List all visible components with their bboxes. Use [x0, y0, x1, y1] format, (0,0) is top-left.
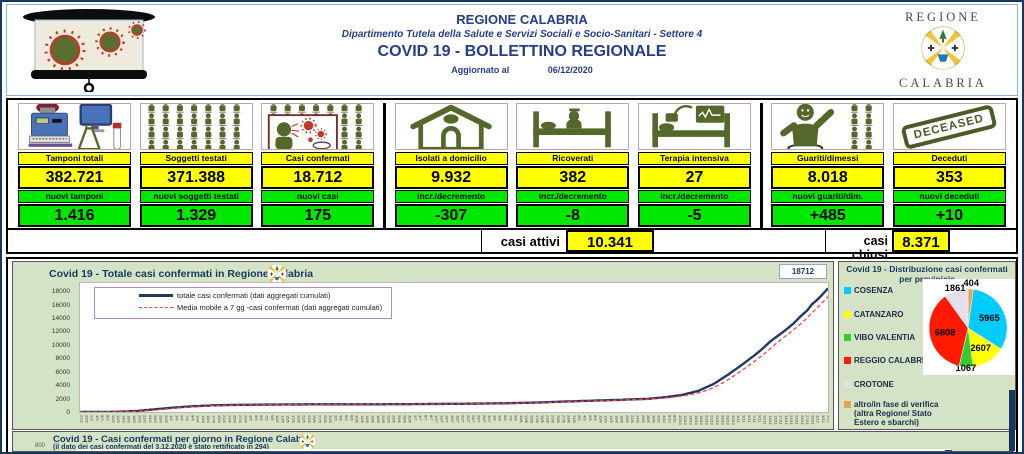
x-tick-label: 14/9	[609, 415, 613, 423]
x-tick-label: 13/8	[524, 415, 528, 423]
stat-sub-label: incr./decremento	[638, 190, 751, 203]
x-tick-label: 19/11	[784, 415, 788, 425]
x-tick-label: 24/6	[392, 415, 396, 423]
summary-row: casi attivi 10.341 casi chiusi 8.371	[8, 228, 1016, 252]
x-tick-label: 24/7	[471, 415, 475, 423]
virus-projector-logo-icon	[13, 8, 165, 92]
x-tick-label: 28/6	[402, 415, 406, 423]
x-tick-label: 5/5	[259, 415, 263, 421]
x-tick-label: 25/11	[800, 415, 804, 425]
stat-value: 382	[516, 166, 629, 189]
x-tick-label: 25/5	[312, 415, 316, 423]
x-tick-label: 4/7	[418, 415, 422, 421]
stat-card-soggetti: Soggetti testati 371.388 nuovi soggetti …	[140, 103, 253, 228]
x-tick-label: 23/8	[551, 415, 555, 423]
x-tick-label: 4/3	[95, 415, 99, 421]
x-tick-label: 21/8	[545, 415, 549, 423]
x-tick-label: 3/12	[821, 415, 825, 423]
x-tick-label: 23/11	[795, 415, 799, 425]
x-tick-label: 6/7	[424, 415, 428, 421]
pie-legend-swatch	[844, 311, 851, 318]
stat-value: 18.712	[261, 166, 374, 189]
stat-label: Isolati a domicilio	[395, 152, 508, 165]
x-tick-label: 23/4	[227, 415, 231, 423]
deceased-stamp-icon: DECEASED	[893, 103, 1006, 150]
stat-card-deceduti: DECEASED Deceduti 353 nuovi deceduti +10	[893, 103, 1006, 228]
x-tick-label: 14/7	[445, 415, 449, 423]
pie-value-label: 2607	[970, 343, 991, 353]
stat-sub-label: incr./decremento	[516, 190, 629, 203]
x-tick-label: 26/10	[720, 415, 724, 425]
pie-value-label: 6808	[935, 328, 956, 338]
province-distribution-panel: Covid 19 - Distribuzione casi confermati…	[838, 261, 1016, 430]
x-tick-label: 13/4	[201, 415, 205, 423]
pie-legend-label: altro/in fase di verifica (altra Regione…	[854, 400, 954, 428]
stat-sub-value: 175	[261, 204, 374, 227]
x-tick-label: 8/6	[349, 415, 353, 421]
x-tick-label: 7/8	[508, 415, 512, 421]
stat-card-terapia: Terapia intensiva 27 incr./decremento -5	[638, 103, 751, 228]
x-tick-label: 22/9	[630, 415, 634, 423]
x-tick-label: 13/11	[768, 415, 772, 425]
pie-value-label: 1861	[945, 283, 966, 293]
x-tick-label: 28/3	[159, 415, 163, 423]
summary-spacer	[8, 230, 482, 252]
x-tick-label: 16/7	[450, 415, 454, 423]
x-tick-label: 8/3	[106, 415, 110, 421]
x-tick-label: 22/3	[143, 415, 147, 423]
stat-card-guariti: Guariti/dimessi 8.018 nuovi guariti/dim.…	[771, 103, 884, 228]
y-tick-label: 16000	[52, 302, 70, 309]
x-tick-label: 26/9	[641, 415, 645, 423]
logo-word-calabria: CALABRIA	[883, 76, 1003, 91]
stat-card-isolati: Isolati a domicilio 9.932 incr./decremen…	[395, 103, 508, 228]
x-tick-label: 28/9	[646, 415, 650, 423]
x-axis: 27/229/22/34/36/38/310/312/314/316/318/3…	[79, 414, 829, 431]
x-tick-label: 13/5	[280, 415, 284, 423]
stat-label: Terapia intensiva	[638, 152, 751, 165]
stat-label: Soggetti testati	[140, 152, 253, 165]
updated-row: Aggiornato al 06/12/2020	[197, 65, 847, 75]
x-tick-label: 21/11	[789, 415, 793, 425]
x-tick-label: 8/7	[429, 415, 433, 421]
y-tick-label: 6000	[56, 369, 70, 376]
x-tick-label: 5/8	[503, 415, 507, 421]
pie-legend-label: VIBO VALENTIA	[854, 333, 915, 342]
x-tick-label: 22/7	[466, 415, 470, 423]
x-tick-label: 20/3	[137, 415, 141, 423]
x-tick-label: 30/7	[487, 415, 491, 423]
stat-value: 9.932	[395, 166, 508, 189]
region-title: REGIONE CALABRIA	[197, 12, 847, 27]
x-tick-label: 15/11	[773, 415, 777, 425]
x-tick-label: 17/11	[779, 415, 783, 425]
deceased-stamp-text: DECEASED	[901, 103, 998, 149]
pie-legend-swatch	[844, 357, 851, 364]
header-titles: REGIONE CALABRIA Dipartimento Tutela del…	[197, 12, 847, 75]
stat-value: 371.388	[140, 166, 253, 189]
x-tick-label: 31/8	[572, 415, 576, 423]
stat-sub-value: 1.329	[140, 204, 253, 227]
x-tick-label: 14/10	[689, 415, 693, 425]
x-tick-label: 9/4	[190, 415, 194, 421]
x-tick-label: 16/9	[614, 415, 618, 423]
x-tick-label: 25/4	[233, 415, 237, 423]
pie-legend-label: REGGIO CALABRIA	[854, 356, 930, 365]
y-tick-label: 8000	[56, 355, 70, 362]
x-tick-label: 28/7	[482, 415, 486, 423]
x-tick-label: 5/4	[180, 415, 184, 421]
x-tick-label: 30/10	[731, 415, 735, 425]
tested-people-grid-icon	[140, 103, 253, 150]
bulletin-page: REGIONE CALABRIA Dipartimento Tutela del…	[0, 0, 1024, 454]
stat-cards-row: Tamponi totali 382.721 nuovi tamponi 1.4…	[8, 100, 1016, 228]
x-tick-label: 25/8	[556, 415, 560, 423]
x-tick-label: 24/3	[148, 415, 152, 423]
confirmed-cases-icon	[261, 103, 374, 150]
x-tick-label: 18/6	[376, 415, 380, 423]
x-tick-label: 11/5	[275, 415, 279, 423]
x-tick-label: 19/8	[540, 415, 544, 423]
y-axis: 0200040006000800010000120001400016000180…	[33, 282, 73, 413]
header: REGIONE CALABRIA Dipartimento Tutela del…	[6, 4, 1018, 96]
x-tick-label: 8/9	[593, 415, 597, 421]
x-tick-label: 1/12	[816, 415, 820, 423]
x-tick-label: 28/10	[726, 415, 730, 425]
summary-spacer	[654, 230, 826, 252]
calabria-emblem-icon	[299, 433, 316, 450]
x-tick-label: 17/4	[212, 415, 216, 423]
x-tick-label: 1/8	[492, 415, 496, 421]
x-tick-label: 29/4	[243, 415, 247, 423]
x-tick-label: 16/3	[127, 415, 131, 423]
summary-spacer	[950, 230, 1016, 252]
x-tick-label: 10/6	[355, 415, 359, 423]
daily-cases-chart-cropped: 800 Covid 19 - Casi confermati per giorn…	[12, 431, 1014, 452]
stat-value: 382.721	[18, 166, 131, 189]
stat-value: 353	[893, 166, 1006, 189]
x-tick-label: 12/6	[360, 415, 364, 423]
x-tick-label: 12/7	[439, 415, 443, 423]
active-cases-value: 10.341	[566, 230, 654, 252]
x-tick-label: 21/5	[302, 415, 306, 423]
x-tick-label: 6/10	[667, 415, 671, 423]
x-tick-label: 3/8	[498, 415, 502, 421]
x-tick-label: 5/11	[747, 415, 751, 423]
x-tick-label: 2/3	[90, 415, 94, 421]
stat-sub-label: nuovi casi	[261, 190, 374, 203]
x-tick-label: 9/5	[270, 415, 274, 421]
department-subtitle: Dipartimento Tutela della Salute e Servi…	[197, 29, 847, 40]
stat-sub-value: +485	[771, 204, 884, 227]
x-tick-label: 3/11	[742, 415, 746, 423]
pie-legend-swatch	[844, 381, 851, 388]
x-tick-label: 17/8	[535, 415, 539, 423]
mini-scroll-marker[interactable]	[945, 450, 952, 452]
x-tick-label: 3/4	[174, 415, 178, 421]
x-tick-label: 3/5	[254, 415, 258, 421]
x-tick-label: 19/5	[296, 415, 300, 423]
y-tick-label: 4000	[56, 382, 70, 389]
pie-legend-label: CATANZARO	[854, 310, 903, 319]
x-tick-label: 15/8	[530, 415, 534, 423]
x-tick-label: 18/7	[455, 415, 459, 423]
pie-legend-label: COSENZA	[854, 286, 893, 295]
x-tick-label: 16/10	[694, 415, 698, 425]
x-tick-label: 2/10	[657, 415, 661, 423]
x-tick-label: 15/4	[206, 415, 210, 423]
x-tick-label: 26/3	[153, 415, 157, 423]
legend-line-swatch	[139, 294, 173, 297]
scrollbar-fragment[interactable]	[1009, 390, 1015, 451]
x-tick-label: 27/2	[79, 415, 83, 423]
x-tick-label: 29/8	[567, 415, 571, 423]
pie-legend-item: CROTONE	[844, 380, 954, 389]
active-cases-label: casi attivi	[482, 230, 566, 252]
x-tick-label: 7/11	[752, 415, 756, 423]
x-tick-label: 30/9	[651, 415, 655, 423]
x-tick-label: 9/8	[514, 415, 518, 421]
x-tick-label: 20/6	[381, 415, 385, 423]
cumulative-cases-chart: Covid 19 - Totale casi confermati in Reg…	[12, 261, 834, 430]
stat-sub-value: -307	[395, 204, 508, 227]
x-tick-label: 20/9	[625, 415, 629, 423]
charts-panel: Covid 19 - Totale casi confermati in Reg…	[6, 257, 1018, 454]
x-tick-label: 1/5	[249, 415, 253, 421]
stat-sub-label: nuovi deceduti	[893, 190, 1006, 203]
stat-value: 8.018	[771, 166, 884, 189]
stat-card-ricoverati: Ricoverati 382 incr./decremento -8	[516, 103, 629, 228]
y-tick-label: 10000	[52, 342, 70, 349]
x-tick-label: 2/9	[577, 415, 581, 421]
y-tick-label: 18000	[52, 288, 70, 295]
x-tick-label: 20/10	[704, 415, 708, 425]
x-tick-label: 26/7	[477, 415, 481, 423]
home-isolation-icon	[395, 103, 508, 150]
pie-value-label: 5965	[979, 313, 1000, 323]
x-tick-label: 9/11	[757, 415, 761, 423]
legend-item-moving-average: Media mobile a 7 gg -casi confermati (da…	[95, 300, 391, 312]
daily-chart-plot-fragment	[77, 449, 951, 452]
pie-value-label: 404	[964, 278, 980, 288]
updated-date: 06/12/2020	[548, 65, 593, 75]
pie-chart: 40459652607106768081861	[923, 278, 1015, 376]
stat-label: Casi confermati	[261, 152, 374, 165]
x-tick-label: 12/9	[604, 415, 608, 423]
group-divider	[383, 103, 386, 228]
x-tick-label: 20/7	[461, 415, 465, 423]
calabria-emblem-icon	[267, 264, 287, 284]
closed-cases-value: 8.371	[892, 230, 950, 252]
x-tick-label: 31/5	[328, 415, 332, 423]
stat-sub-label: nuovi tamponi	[18, 190, 131, 203]
y-tick-label: 14000	[52, 315, 70, 322]
stat-sub-value: -5	[638, 204, 751, 227]
x-tick-label: 23/5	[307, 415, 311, 423]
stat-label: Tamponi totali	[18, 152, 131, 165]
x-tick-label: 27/5	[318, 415, 322, 423]
max-value-label: 18712	[779, 264, 827, 279]
x-tick-label: 27/11	[805, 415, 809, 425]
legend-label: Media mobile a 7 gg -casi confermati (da…	[177, 303, 382, 312]
x-tick-label: 15/5	[286, 415, 290, 423]
legend-ma-swatch	[139, 307, 173, 308]
legend-label: totale casi confermati (dati aggregati c…	[177, 291, 330, 300]
closed-cases-label: casi chiusi	[826, 230, 892, 252]
x-tick-label: 12/10	[683, 415, 687, 425]
regione-calabria-logo: REGIONE CALABRIA	[883, 10, 1003, 91]
group-divider	[760, 103, 763, 228]
x-tick-label: 30/3	[164, 415, 168, 423]
x-tick-label: 11/4	[196, 415, 200, 423]
x-tick-label: 4/9	[583, 415, 587, 421]
pie-legend-swatch	[844, 401, 851, 408]
plot-area: totale casi confermati (dati aggregati c…	[79, 282, 829, 413]
stat-value: 27	[638, 166, 751, 189]
x-tick-label: 24/10	[715, 415, 719, 425]
x-tick-label: 29/11	[810, 415, 814, 425]
x-tick-label: 10/9	[598, 415, 602, 423]
x-tick-label: 30/6	[408, 415, 412, 423]
x-tick-label: 4/10	[662, 415, 666, 423]
x-tick-label: 11/8	[519, 415, 523, 423]
recovered-person-icon	[771, 103, 884, 150]
x-tick-label: 18/10	[699, 415, 703, 425]
x-tick-label: 29/2	[84, 415, 88, 423]
bulletin-title: COVID 19 - BOLLETTINO REGIONALE	[197, 43, 847, 61]
x-tick-label: 2/7	[413, 415, 417, 421]
x-tick-label: 10/3	[111, 415, 115, 423]
stat-card-confermati: Casi confermati 18.712 nuovi casi 175	[261, 103, 374, 228]
x-tick-label: 4/6	[339, 415, 343, 421]
x-tick-label: 14/3	[121, 415, 125, 423]
calabria-emblem-icon	[921, 26, 965, 70]
legend-item-total: totale casi confermati (dati aggregati c…	[95, 288, 391, 300]
x-tick-label: 12/3	[116, 415, 120, 423]
lab-analyzer-icon	[18, 103, 131, 150]
x-tick-label: 27/4	[238, 415, 242, 423]
stat-label: Guariti/dimessi	[771, 152, 884, 165]
pie-legend-swatch	[844, 334, 851, 341]
y-tick-label: 12000	[52, 328, 70, 335]
x-tick-label: 8/10	[673, 415, 677, 423]
pie-legend-swatch	[844, 287, 851, 294]
x-tick-label: 22/10	[710, 415, 714, 425]
x-tick-label: 19/4	[217, 415, 221, 423]
x-tick-label: 27/8	[561, 415, 565, 423]
updated-label: Aggiornato al	[451, 65, 509, 75]
intensive-care-icon	[638, 103, 751, 150]
x-tick-label: 6/6	[344, 415, 348, 421]
logo-word-regione: REGIONE	[883, 10, 1003, 25]
daily-chart-ytick: 800	[35, 443, 45, 449]
pie-legend-label: CROTONE	[854, 380, 894, 389]
stat-label: Ricoverati	[516, 152, 629, 165]
y-tick-label: 0	[66, 409, 70, 416]
x-tick-label: 17/5	[291, 415, 295, 423]
x-tick-label: 18/3	[132, 415, 136, 423]
x-tick-label: 21/4	[222, 415, 226, 423]
stat-sub-value: 1.416	[18, 204, 131, 227]
x-tick-label: 7/5	[265, 415, 269, 421]
stat-sub-value: +10	[893, 204, 1006, 227]
x-tick-label: 10/10	[678, 415, 682, 425]
x-tick-label: 10/7	[434, 415, 438, 423]
x-tick-label: 22/6	[386, 415, 390, 423]
stat-sub-label: nuovi guariti/dim.	[771, 190, 884, 203]
x-tick-label: 16/6	[371, 415, 375, 423]
x-tick-label: 5/12	[826, 415, 829, 423]
x-tick-label: 11/11	[763, 415, 767, 424]
stats-panel: Tamponi totali 382.721 nuovi tamponi 1.4…	[6, 98, 1018, 254]
stat-sub-label: nuovi soggetti testati	[140, 190, 253, 203]
x-tick-label: 29/5	[323, 415, 327, 423]
pie-legend-item: altro/in fase di verifica (altra Regione…	[844, 400, 954, 428]
stat-sub-value: -8	[516, 204, 629, 227]
x-tick-label: 14/6	[365, 415, 369, 423]
x-tick-label: 1/11	[736, 415, 740, 423]
x-tick-label: 24/9	[636, 415, 640, 423]
y-tick-label: 2000	[56, 396, 70, 403]
stat-label: Deceduti	[893, 152, 1006, 165]
x-tick-label: 6/3	[100, 415, 104, 421]
x-tick-label: 1/4	[169, 415, 173, 421]
x-tick-label: 7/4	[185, 415, 189, 421]
hospital-bed-icon	[516, 103, 629, 150]
x-tick-label: 6/9	[588, 415, 592, 421]
x-tick-label: 18/9	[620, 415, 624, 423]
x-tick-label: 26/6	[397, 415, 401, 423]
chart-legend: totale casi confermati (dati aggregati c…	[94, 287, 392, 319]
stat-card-tamponi: Tamponi totali 382.721 nuovi tamponi 1.4…	[18, 103, 131, 228]
x-tick-label: 2/6	[333, 415, 337, 421]
stat-sub-label: incr./decremento	[395, 190, 508, 203]
